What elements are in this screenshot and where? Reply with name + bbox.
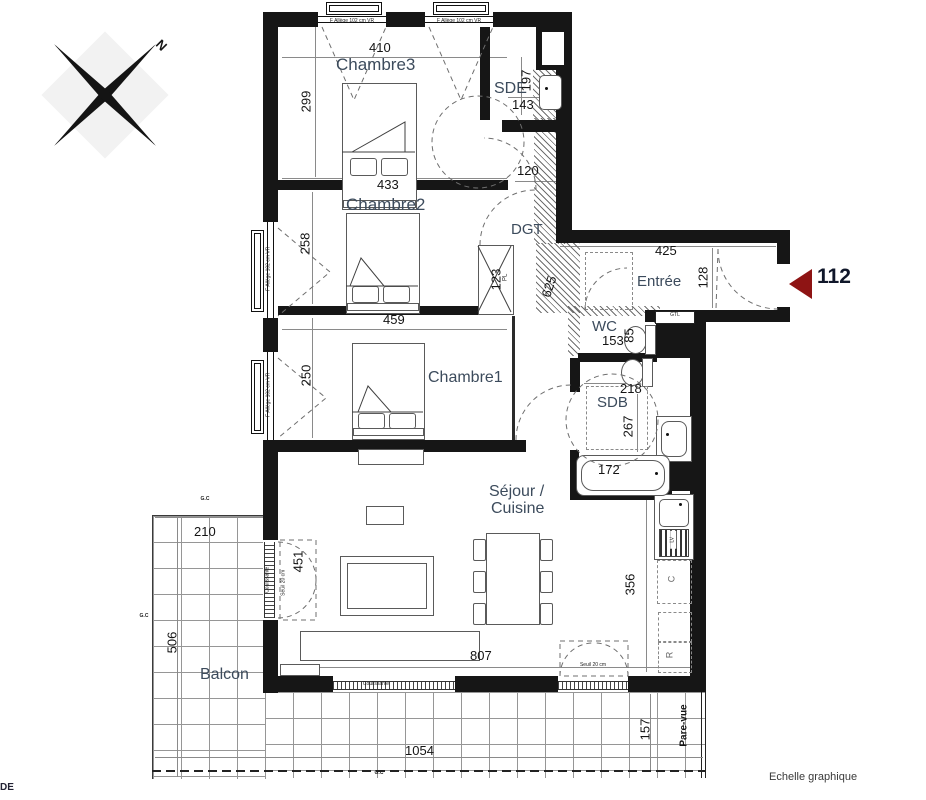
dimension-label: 218 xyxy=(620,381,642,396)
dimension-label: 258 xyxy=(298,227,313,261)
dimension-label: 425 xyxy=(655,243,677,258)
room-label-entree: Entrée xyxy=(637,273,681,290)
window-label: F Allège 102 cm VR xyxy=(266,239,272,299)
dimension-label: 210 xyxy=(194,524,216,539)
dimension-label: 807 xyxy=(470,648,492,663)
gc-label: G.C xyxy=(134,614,154,620)
floor-plan-canvas: Chambre3 SDE DGT Entrée WC SDB Chambre2 … xyxy=(0,0,926,800)
dimension-label: 410 xyxy=(369,40,391,55)
dimension-label: 128 xyxy=(696,261,711,295)
cooker-label: C xyxy=(666,576,676,583)
room-label-chambre2: Chambre2 xyxy=(346,195,425,215)
room-label-dgt: DGT xyxy=(511,221,543,238)
dimension-label: 267 xyxy=(621,410,636,444)
gc-label: G.C xyxy=(195,497,215,503)
dimension-label: 123 xyxy=(489,263,504,297)
pare-vue-label: Pare-vue xyxy=(679,696,690,756)
unit-number: 112 xyxy=(817,265,851,289)
room-label-sejour-2: Cuisine xyxy=(491,500,544,518)
room-label-sdb: SDB xyxy=(597,394,628,411)
gtl-label: GTL xyxy=(663,313,687,319)
dimension-label: 356 xyxy=(623,568,638,602)
sliding-label: Coulissante xyxy=(265,555,271,605)
dimension-label: 506 xyxy=(165,626,180,660)
fridge-label: R xyxy=(664,652,674,659)
compass-rose: N xyxy=(25,15,185,175)
dimension-label: 120 xyxy=(517,163,539,178)
closet-label: PL xyxy=(503,267,510,287)
corner-label: DE xyxy=(0,782,14,793)
dimension-label: 451 xyxy=(291,545,306,579)
seuil-label: Seuil 20 cm xyxy=(281,560,287,606)
room-label-sejour-1: Séjour / xyxy=(489,483,544,501)
dimension-label: 197 xyxy=(519,64,534,98)
dimension-label: 157 xyxy=(638,713,653,747)
dimension-label: 433 xyxy=(377,177,399,192)
seuil-label: Seuil 20 cm xyxy=(568,663,618,669)
dimension-label: 153 xyxy=(602,333,624,348)
dishwasher-label: LV xyxy=(670,531,676,549)
gc-label: G.C xyxy=(369,771,389,777)
dimension-label: 299 xyxy=(299,85,314,119)
sliding-label: Coulissante xyxy=(346,682,406,688)
scale-label: Echelle graphique xyxy=(769,771,857,783)
room-label-chambre3: Chambre3 xyxy=(336,55,415,75)
room-label-chambre1: Chambre1 xyxy=(428,369,503,387)
compass-north-label: N xyxy=(153,37,170,54)
dimension-label: 250 xyxy=(299,359,314,393)
dimension-label: 459 xyxy=(383,312,405,327)
window-label: F Allège 102 cm VR xyxy=(427,19,491,25)
dimension-label: 172 xyxy=(598,462,620,477)
room-label-balcon: Balcon xyxy=(200,666,249,684)
unit-arrow-icon xyxy=(789,269,812,299)
dimension-label: 1054 xyxy=(405,743,434,758)
window-label: F Allège 102 cm VR xyxy=(320,19,384,25)
window-label: F Allège 102 cm VR xyxy=(266,365,272,425)
dimension-label: 143 xyxy=(512,97,534,112)
dimension-label: 85 xyxy=(622,322,637,350)
